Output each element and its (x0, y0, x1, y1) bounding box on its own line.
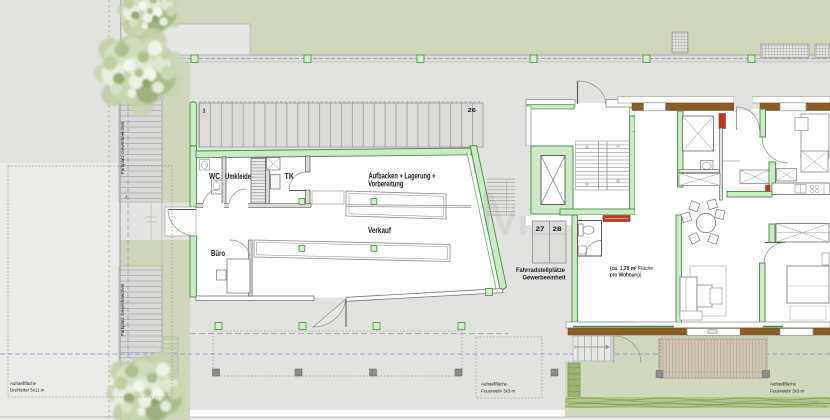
svg-text:Verkauf: Verkauf (368, 226, 391, 235)
svg-text:28: 28 (553, 227, 563, 233)
svg-text:Büro: Büro (211, 249, 225, 258)
svg-text:pro Wohnung): pro Wohnung) (610, 273, 642, 279)
svg-text:1: 1 (203, 109, 206, 115)
svg-text:Vorbereitung: Vorbereitung (368, 180, 403, 189)
svg-text:26: 26 (468, 108, 477, 114)
svg-text:(ca. 1,28 m² Fläche: (ca. 1,28 m² Fläche (610, 266, 653, 272)
svg-text:Aufstellfläche: Aufstellfläche (770, 382, 797, 387)
svg-text:Feuerwehr 3x3 m: Feuerwehr 3x3 m (481, 389, 516, 394)
svg-text:Fahrradstellplätze: Fahrradstellplätze (516, 268, 566, 274)
svg-text:TK: TK (285, 172, 295, 181)
svg-text:27: 27 (536, 227, 546, 233)
svg-text:Drehleiter 5x11 m: Drehleiter 5x11 m (10, 388, 45, 393)
svg-text:Umkleide: Umkleide (225, 172, 251, 181)
svg-text:Aufstellfläche: Aufstellfläche (481, 382, 508, 387)
svg-text:Feuerwehr 3x3 m: Feuerwehr 3x3 m (770, 389, 805, 394)
svg-text:Aufstellfläche: Aufstellfläche (10, 381, 37, 386)
svg-text:WC: WC (209, 172, 220, 181)
svg-text:Gewerbeeinheit: Gewerbeeinheit (523, 276, 566, 282)
